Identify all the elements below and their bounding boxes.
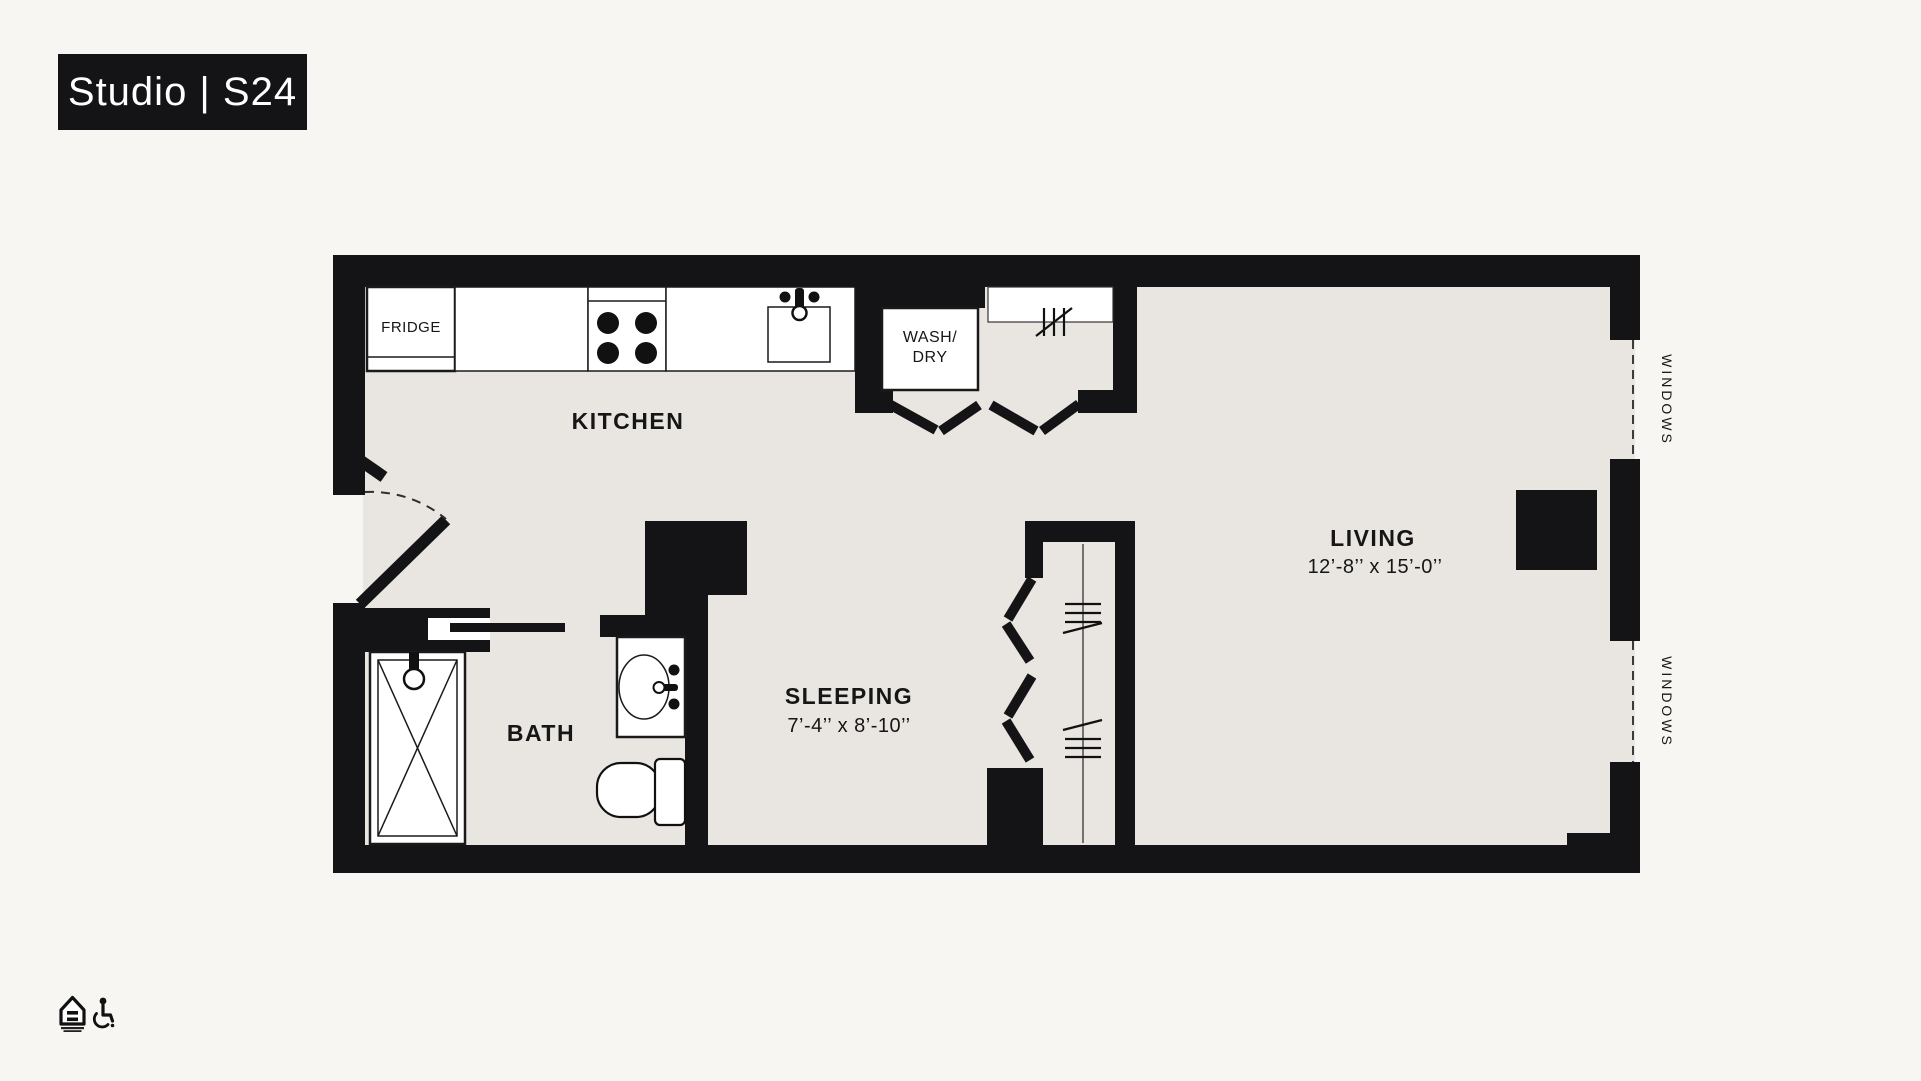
equal-housing-icon (61, 998, 84, 1033)
bath-vanity-sink (617, 637, 685, 737)
floor-plan-page: Studio | S24 (0, 0, 1921, 1081)
living-column (1516, 490, 1597, 570)
washer-dryer-label-line2: DRY (913, 349, 948, 366)
countertop (455, 287, 588, 371)
bath-label: BATH (507, 720, 575, 746)
toilet (597, 759, 685, 825)
windows-label-2: WINDOWS (1659, 656, 1675, 748)
washer-dryer: WASH/ DRY (882, 308, 978, 390)
footer-icons (61, 998, 114, 1033)
stove (588, 287, 666, 371)
kitchen-sink-counter (666, 287, 855, 371)
floor-plan-drawing: FRIDGE (0, 0, 1921, 1081)
kitchen-label: KITCHEN (572, 408, 685, 434)
sleeping-dimensions: 7’-4’’ x 8’-10’’ (787, 715, 910, 737)
washer-dryer-label-line1: WASH/ (903, 329, 957, 346)
bath-door-panel (450, 623, 565, 632)
sleeping-label: SLEEPING (785, 683, 913, 709)
kitchen-counter: FRIDGE (367, 287, 855, 371)
living-label: LIVING (1330, 525, 1416, 551)
fridge-label: FRIDGE (381, 319, 441, 336)
windows-label-1: WINDOWS (1659, 354, 1675, 446)
wheelchair-icon (94, 998, 114, 1028)
shower (370, 652, 465, 844)
fridge: FRIDGE (367, 287, 455, 371)
living-dimensions: 12’-8’’ x 15’-0’’ (1308, 556, 1443, 578)
